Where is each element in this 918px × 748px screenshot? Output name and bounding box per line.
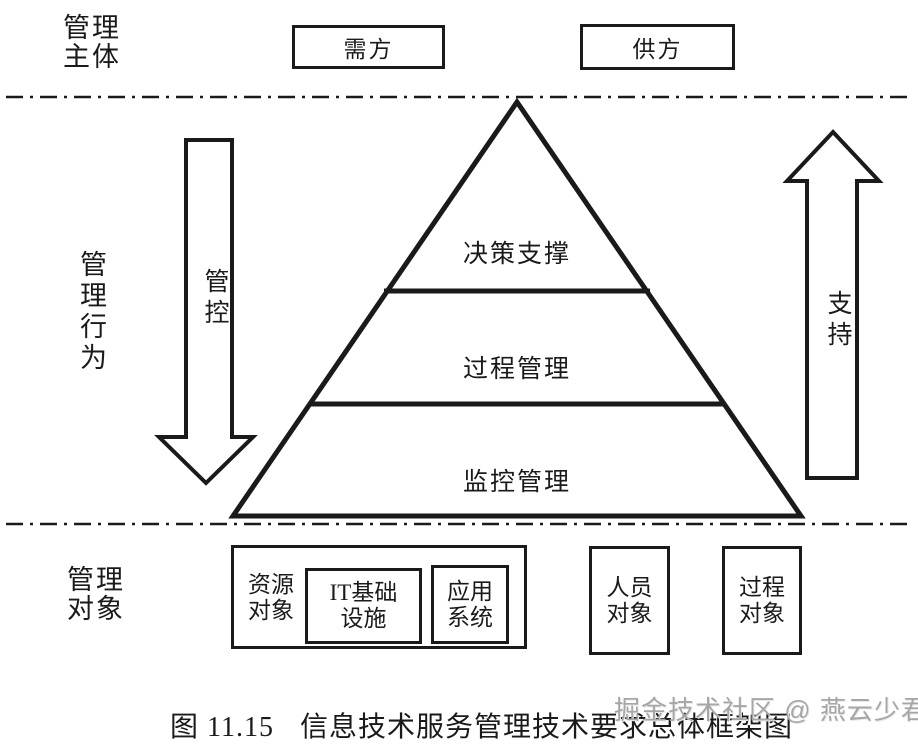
application-system-line: 系统 [447, 605, 493, 631]
row-label-line: 主体 [60, 43, 124, 72]
supply-side-box: 供方 [580, 24, 735, 70]
process-object-box: 过程 对象 [722, 546, 802, 655]
personnel-line: 人员 [607, 575, 653, 601]
personnel-line: 对象 [607, 601, 653, 627]
row-label-management-object: 管理 对象 [64, 566, 128, 624]
process-object-label: 过程 对象 [739, 575, 785, 627]
personnel-object-box: 人员 对象 [589, 546, 670, 655]
pyramid-tier-decision-support: 决策支撑 [437, 234, 597, 270]
pyramid-outline [233, 102, 801, 516]
it-infrastructure-box: IT基础 设施 [305, 568, 422, 644]
row-label-line: 对象 [64, 595, 128, 624]
figure-number: 图 11.15 [170, 712, 274, 743]
row-label-management-subject: 管理 主体 [60, 14, 124, 72]
pyramid-tier-process-management: 过程管理 [437, 349, 597, 385]
process-line: 过程 [739, 575, 785, 601]
support-arrow-label: 支持 [819, 290, 855, 352]
pyramid-tier-monitoring-management: 监控管理 [437, 462, 597, 498]
it-infrastructure-label: IT基础 设施 [330, 580, 398, 632]
application-system-label: 应用 系统 [447, 579, 493, 631]
application-system-line: 应用 [447, 579, 493, 605]
row-label-management-behavior: 管理行为 [72, 250, 111, 374]
personnel-object-label: 人员 对象 [607, 575, 653, 627]
application-system-box: 应用 系统 [431, 565, 509, 644]
it-infrastructure-line: 设施 [330, 606, 398, 632]
resource-object-label: 资源 对象 [243, 572, 299, 624]
resource-label-line: 对象 [243, 598, 299, 624]
demand-side-box: 需方 [292, 25, 445, 69]
row-label-line: 管理 [60, 14, 124, 43]
watermark-text: 掘金技术社区 @ 燕云少君 [614, 690, 918, 727]
resource-label-line: 资源 [243, 572, 299, 598]
it-infrastructure-line: IT基础 [330, 580, 398, 606]
control-arrow-label: 管控 [196, 268, 232, 330]
figure-canvas: 管理 主体 管理行为 管理 对象 需方 供方 管控 支持 决策支撑 过程管理 监… [0, 0, 918, 748]
row-label-line: 管理 [64, 566, 128, 595]
resource-object-box: 资源 对象 IT基础 设施 应用 系统 [231, 545, 527, 649]
process-line: 对象 [739, 601, 785, 627]
